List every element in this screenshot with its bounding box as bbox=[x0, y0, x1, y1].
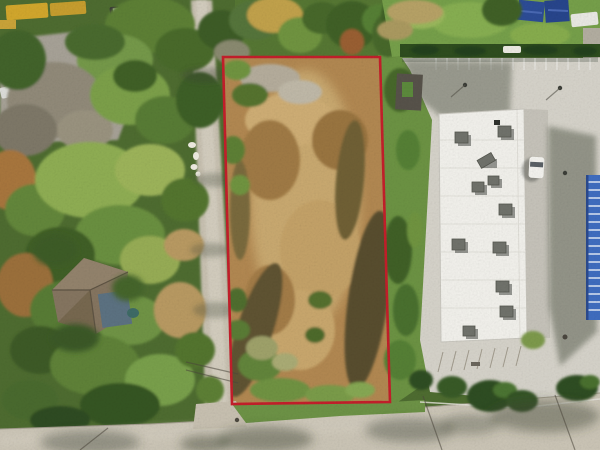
aerial-photo-canvas bbox=[0, 0, 600, 450]
aerial-photo bbox=[0, 0, 600, 450]
photo-grain-overlay bbox=[0, 0, 600, 450]
